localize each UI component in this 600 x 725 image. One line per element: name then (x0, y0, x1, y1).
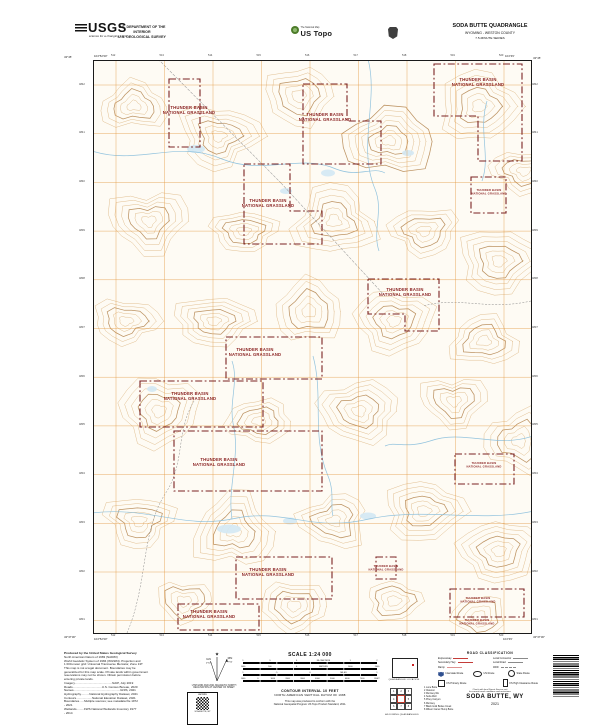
svg-text:0°54': 0°54' (206, 663, 212, 665)
adjoining-cell: 2 (397, 688, 404, 695)
road-class-label: Local Connector (493, 657, 511, 660)
collar-number-left: 4841 (79, 131, 85, 134)
state-locator-map (392, 658, 418, 678)
road-classification-title: ROAD CLASSIFICATION (438, 651, 542, 655)
collar-number-left: 4840 (79, 180, 85, 183)
svg-text:0: 0 (296, 666, 298, 668)
road-class-row: Ramp4WD (438, 666, 542, 669)
barcode (553, 655, 579, 697)
collar-number-top: 517 (354, 54, 358, 57)
grassland-label: THUNDER BASINNATIONAL GRASSLAND (193, 457, 246, 467)
road-class-row: Secondary HwyLocal Road (438, 661, 542, 664)
svg-text:2: 2 (376, 660, 378, 662)
collar-number-left: 4831 (79, 618, 85, 621)
svg-text:1: 1 (350, 660, 352, 662)
road-class-label: Secondary Hwy (438, 661, 456, 664)
fs-route-label: FS High Clearance Route (510, 682, 539, 685)
svg-text:2000: 2000 (375, 666, 380, 668)
road-class-label: 4WD (493, 666, 499, 669)
dept-line1: U.S. DEPARTMENT OF THE INTERIOR (112, 25, 172, 35)
sheet-title: SODA BUTTE, WY (440, 694, 550, 700)
collar-number-right: 4834 (532, 472, 538, 475)
collar-number-right: 4832 (532, 570, 538, 573)
road-line-sample (453, 658, 468, 659)
collar-number-left: 4833 (79, 521, 85, 524)
grassland-label: THUNDER BASINNATIONAL GRASSLAND (379, 287, 432, 297)
grassland-label: THUNDER BASINNATIONAL GRASSLAND (164, 391, 217, 401)
collar-number-right: 4841 (532, 131, 538, 134)
collar-number-left: 4835 (79, 423, 85, 426)
collar-number-bottom: 513 (160, 634, 164, 637)
collar-number-left: 4837 (79, 326, 85, 329)
collar-number-top: 515 (257, 54, 261, 57)
grassland-label: THUNDER BASINNATIONAL GRASSLAND (299, 112, 352, 122)
adjoining-name: 8 Wilson Camel Hump Butte (424, 709, 453, 712)
collar-number-bottom: 515 (257, 634, 261, 637)
svg-text:1: 1 (242, 660, 244, 662)
svg-text:500: 500 (268, 666, 272, 668)
collar-number-top: 520 (499, 54, 503, 57)
credits-line: Boundaries......Multiple sources; see me… (64, 700, 148, 704)
route-shield-item: State Route (508, 670, 542, 677)
route-shield-item: Interstate Route (438, 670, 472, 677)
corner-bl-lat: 43°37'30" (64, 635, 76, 639)
adjoining-cell: 3 (405, 688, 412, 695)
collar-number-right: 4842 (532, 83, 538, 86)
collar-number-left: 4842 (79, 83, 85, 86)
adjoining-cell: 4 (390, 695, 397, 702)
collar-number-right: 4831 (532, 618, 538, 621)
svg-text:1000: 1000 (241, 678, 246, 680)
department-heading: U.S. DEPARTMENT OF THE INTERIOR U.S. GEO… (112, 25, 172, 40)
grassland-label: THUNDER BASINNATIONAL GRASSLAND (242, 567, 295, 577)
road-line-sample (513, 658, 528, 659)
dept-line2: U.S. GEOLOGICAL SURVEY (112, 35, 172, 40)
road-class-cell: Expressway (438, 657, 487, 660)
qr-code (196, 697, 209, 710)
svg-text:1: 1 (376, 672, 378, 674)
svg-text:7°52': 7°52' (228, 662, 234, 664)
road-line-sample (508, 662, 523, 663)
quad-location-dot (412, 664, 414, 666)
contour-interval-note: CONTOUR INTERVAL 10 FEET NORTH AMERICAN … (230, 689, 390, 697)
svg-text:★: ★ (215, 652, 220, 657)
svg-text:6000: 6000 (345, 678, 350, 680)
svg-text:1000: 1000 (270, 678, 275, 680)
svg-text:GN: GN (206, 657, 211, 661)
road-classification: ROAD CLASSIFICATION ExpresswayLocal Conn… (438, 651, 542, 693)
map-canvas: THUNDER BASINNATIONAL GRASSLANDTHUNDER B… (93, 60, 532, 634)
corner-tr-lat: 43°45' (533, 56, 541, 60)
map-svg: THUNDER BASINNATIONAL GRASSLANDTHUNDER B… (94, 61, 531, 633)
state-shield-icon (508, 670, 515, 677)
credits-block: Produced by the United States Geological… (64, 652, 148, 715)
road-class-cell: Local Road (493, 661, 542, 664)
fs-route-label: FS Primary Route (447, 682, 467, 685)
collar-number-right: 4836 (532, 375, 538, 378)
ustopo-icon (291, 26, 299, 34)
quad-title-block: SODA BUTTE QUADRANGLE WYOMING - WESTON C… (430, 23, 550, 40)
road-class-label: Expressway (438, 657, 451, 660)
adjoining-quads-grid: 12345678 (390, 688, 412, 710)
adjoining-cell (397, 695, 404, 702)
grassland-label: THUNDER BASINNATIONAL GRASSLAND (242, 198, 295, 208)
corner-br-lon: 104°45' (503, 637, 512, 641)
collar-number-bottom: 519 (451, 634, 455, 637)
svg-text:4000: 4000 (315, 678, 320, 680)
collar-number-left: 4832 (79, 570, 85, 573)
collar-number-right: 4839 (532, 229, 538, 232)
adjoining-cell: 7 (397, 703, 404, 710)
corner-br-lat: 43°37'30" (533, 635, 545, 639)
svg-text:.5: .5 (276, 672, 279, 674)
fs-route-item: FS High Clearance Route (503, 679, 538, 688)
usgs-wave-icon (75, 24, 87, 33)
road-class-cell: Ramp (438, 666, 487, 669)
quad-location-caption: QUADRANGLE LOCATION (380, 679, 428, 681)
sheet-year: 2021 (440, 702, 550, 706)
corner-tl-lat: 43°45' (64, 55, 72, 59)
forest-service-shield-icon (388, 27, 398, 39)
ustopo-brand-large: US Topo (301, 29, 333, 38)
svg-text:1000: 1000 (348, 666, 353, 668)
collar-number-right: 4835 (532, 423, 538, 426)
svg-text:1: 1 (242, 672, 244, 674)
svg-text:KILOMETERS: KILOMETERS (317, 660, 331, 662)
collar-number-top: 512 (111, 54, 115, 57)
fs-route-item: FS Primary Route (438, 679, 466, 688)
grassland-label: THUNDER BASINNATIONAL GRASSLAND (183, 609, 236, 619)
credits-line: - 2014 (64, 712, 148, 716)
grassland-label: THUNDER BASINNATIONAL GRASSLAND (163, 105, 216, 115)
road-line-sample (501, 667, 516, 668)
road-class-label: Local Road (493, 661, 506, 664)
corner-tl-lon: 104°52'30" (94, 54, 108, 58)
grassland-label: THUNDER BASINNATIONAL GRASSLAND (459, 618, 494, 625)
route-shield-label: State Route (517, 672, 530, 675)
collar-number-bottom: 518 (402, 634, 406, 637)
svg-text:METERS: METERS (319, 666, 328, 668)
road-line-sample (447, 667, 462, 668)
collar-number-bottom: 517 (354, 634, 358, 637)
collar-number-left: 4838 (79, 277, 85, 280)
svg-text:1000: 1000 (241, 666, 246, 668)
us-shield-icon (473, 671, 482, 678)
grassland-label: THUNDER BASINNATIONAL GRASSLAND (460, 596, 495, 603)
grassland-label: THUNDER BASINNATIONAL GRASSLAND (368, 564, 403, 571)
svg-text:2000: 2000 (285, 678, 290, 680)
collar-number-top: 518 (402, 54, 406, 57)
fsh-marker-icon (503, 679, 508, 688)
ustopo-logo: The National Map US Topo (291, 26, 332, 38)
adjoining-cell: 5 (405, 695, 412, 702)
adjoining-cell: 6 (390, 703, 397, 710)
svg-text:7000: 7000 (360, 678, 365, 680)
quad-series: 7.5-MINUTE SERIES (430, 36, 550, 40)
svg-text:5000: 5000 (330, 678, 335, 680)
grassland-label: THUNDER BASINNATIONAL GRASSLAND (466, 461, 501, 468)
road-class-cell: Secondary Hwy (438, 661, 487, 664)
grassland-label: THUNDER BASINNATIONAL GRASSLAND (471, 188, 506, 195)
route-shield-label: US Route (484, 672, 495, 675)
svg-text:0: 0 (309, 672, 311, 674)
qr-info-box: US TOPO SODA BUTTE, WY (187, 692, 218, 725)
collar-number-right: 4833 (532, 521, 538, 524)
corner-bl-lon: 104°52'30" (94, 637, 108, 641)
road-class-cell: Local Connector (493, 657, 542, 660)
collar-number-top: 513 (160, 54, 164, 57)
road-class-cell: 4WD (493, 666, 542, 669)
collar-number-right: 4838 (532, 277, 538, 280)
collar-number-top: 516 (305, 54, 309, 57)
scale-bars: 1.50KILOMETERS1210005000METERS100020001.… (235, 658, 385, 685)
collar-number-top: 514 (208, 54, 212, 57)
adjoining-quads-caption: ADJOINING QUADRANGLES (378, 714, 426, 716)
interstate-shield-icon (438, 671, 444, 677)
svg-text:3000: 3000 (300, 678, 305, 680)
usgs-topo-sheet: USGS science for a changing world U.S. D… (0, 0, 600, 725)
collar-number-left: 4839 (79, 229, 85, 232)
grassland-label: THUNDER BASINNATIONAL GRASSLAND (452, 77, 505, 87)
sheet-title-block: SODA BUTTE, WY 2021 (440, 694, 550, 706)
svg-text:0: 0 (257, 678, 259, 680)
conformance-note: This map was produced to conform with th… (220, 700, 400, 706)
collar-number-top: 519 (451, 54, 455, 57)
fsp-marker-icon (438, 680, 445, 687)
route-shield-label: Interstate Route (446, 672, 464, 675)
svg-text:0: 0 (296, 660, 298, 662)
corner-tr-lon: 104°45' (505, 54, 514, 58)
svg-text:.5: .5 (269, 660, 272, 662)
collar-number-bottom: 516 (305, 634, 309, 637)
adjoining-cell: 8 (405, 703, 412, 710)
quad-state-county: WYOMING - WESTON COUNTY (430, 31, 550, 35)
collar-number-right: 4837 (532, 326, 538, 329)
credits-line: Wetlands.........FWS National Wetlands I… (64, 708, 148, 712)
adjoining-cell: 1 (390, 688, 397, 695)
quad-title: SODA BUTTE QUADRANGLE (430, 23, 550, 29)
grassland-label: THUNDER BASINNATIONAL GRASSLAND (229, 347, 282, 357)
road-class-row: ExpresswayLocal Connector (438, 657, 542, 660)
collar-number-bottom: 514 (208, 634, 212, 637)
collar-number-left: 4836 (79, 375, 85, 378)
route-shield-item: US Route (473, 670, 507, 677)
road-line-sample (458, 662, 473, 663)
collar-number-left: 4834 (79, 472, 85, 475)
svg-text:MILES: MILES (340, 672, 347, 674)
collar-number-right: 4840 (532, 180, 538, 183)
collar-number-bottom: 512 (111, 634, 115, 637)
road-class-label: Ramp (438, 666, 445, 669)
